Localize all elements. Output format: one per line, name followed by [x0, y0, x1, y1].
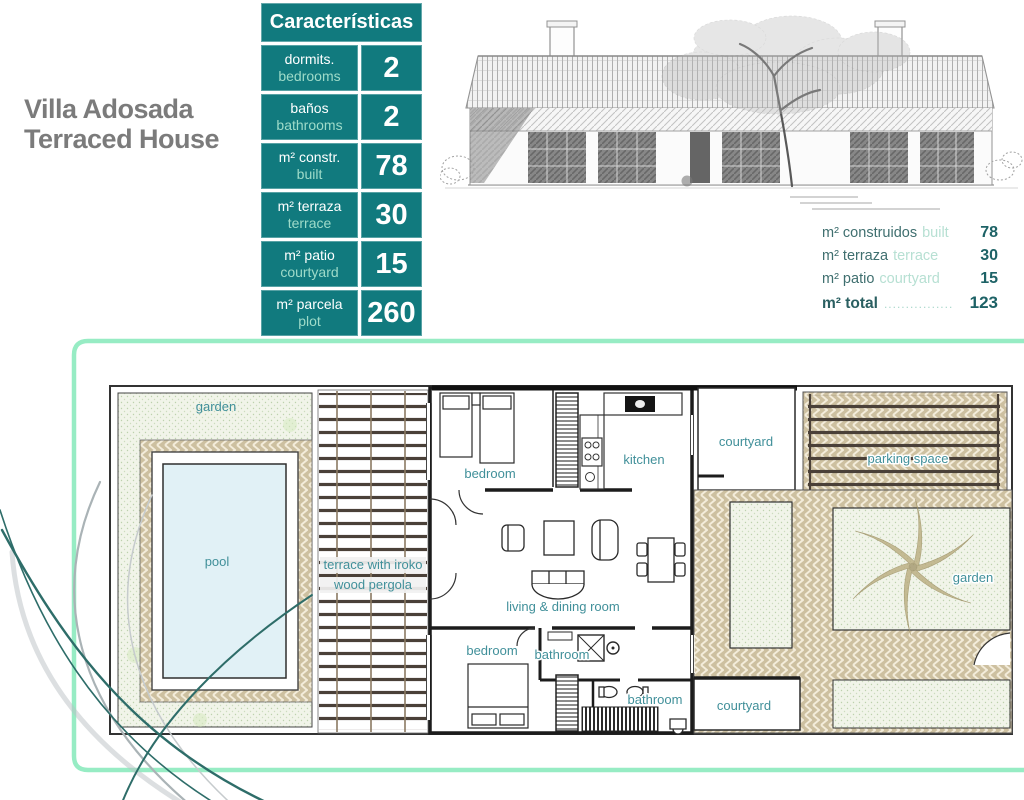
table-row-terrace: m² terraza terrace 30: [261, 192, 422, 238]
chimney-left: [547, 21, 577, 58]
plant-pot: [682, 176, 693, 187]
row-label: m² constr. built: [261, 143, 358, 189]
label-courtyard-top: courtyard: [719, 434, 773, 449]
table-row-built: m² constr. built 78: [261, 143, 422, 189]
summary-row-courtyard: m² patio courtyard 15: [822, 270, 998, 293]
title-line-english: Terraced House: [24, 124, 264, 154]
label-bedroom-top: bedroom: [464, 466, 515, 481]
table-row-bedrooms: dormits. bedrooms 2: [261, 45, 422, 91]
shower-tiles: [582, 707, 658, 731]
door-opening: [690, 132, 710, 183]
planting-strip: [730, 502, 792, 648]
table-row-courtyard: m² patio courtyard 15: [261, 241, 422, 287]
steps: [790, 197, 940, 209]
label-terrace-2: wood pergola: [333, 577, 413, 592]
row-label: baños bathrooms: [261, 94, 358, 140]
label-bathroom-2: bathroom: [628, 692, 683, 707]
label-courtyard-bottom: courtyard: [717, 698, 771, 713]
green-strip-bottom: [833, 680, 1010, 728]
characteristics-table: Características dormits. bedrooms 2 baño…: [261, 3, 422, 336]
summary-row-total: m² total ................ 123: [822, 293, 998, 316]
table-row-plot: m² parcela plot 260: [261, 290, 422, 336]
label-bedroom-bottom: bedroom: [466, 643, 517, 658]
wardrobe-top: [556, 393, 578, 487]
elevation-sketch: [440, 0, 1024, 232]
label-garden-right: garden: [953, 570, 993, 585]
label-bathroom-1: bathroom: [535, 647, 590, 662]
row-label: m² patio courtyard: [261, 241, 358, 287]
area-summary: m² construidos built 78 m² terraza terra…: [822, 224, 998, 316]
parking-area: parking space: [803, 392, 1007, 503]
row-value: 2: [361, 45, 422, 91]
row-label: m² parcela plot: [261, 290, 358, 336]
label-kitchen: kitchen: [623, 452, 664, 467]
beam-band: [470, 108, 992, 131]
bedroom-bottom-furniture: [468, 664, 528, 728]
label-garden-left: garden: [196, 399, 236, 414]
row-value: 78: [361, 143, 422, 189]
table-row-bathrooms: baños bathrooms 2: [261, 94, 422, 140]
brochure-page: Villa Adosada Terraced House Característ…: [0, 0, 1024, 800]
row-value: 2: [361, 94, 422, 140]
summary-row-terrace: m² terraza terrace 30: [822, 247, 998, 270]
row-label: dormits. bedrooms: [261, 45, 358, 91]
wardrobe-bottom: [556, 675, 578, 731]
summary-row-built: m² construidos built 78: [822, 224, 998, 247]
label-living: living & dining room: [506, 599, 619, 614]
decorative-swoosh: [0, 440, 340, 800]
row-label: m² terraza terrace: [261, 192, 358, 238]
title-line-spanish: Villa Adosada: [24, 94, 264, 124]
characteristics-header: Características: [261, 3, 422, 42]
row-value: 30: [361, 192, 422, 238]
label-parking: parking space: [868, 451, 949, 466]
row-value: 260: [361, 290, 422, 336]
row-value: 15: [361, 241, 422, 287]
property-title: Villa Adosada Terraced House: [24, 94, 264, 154]
